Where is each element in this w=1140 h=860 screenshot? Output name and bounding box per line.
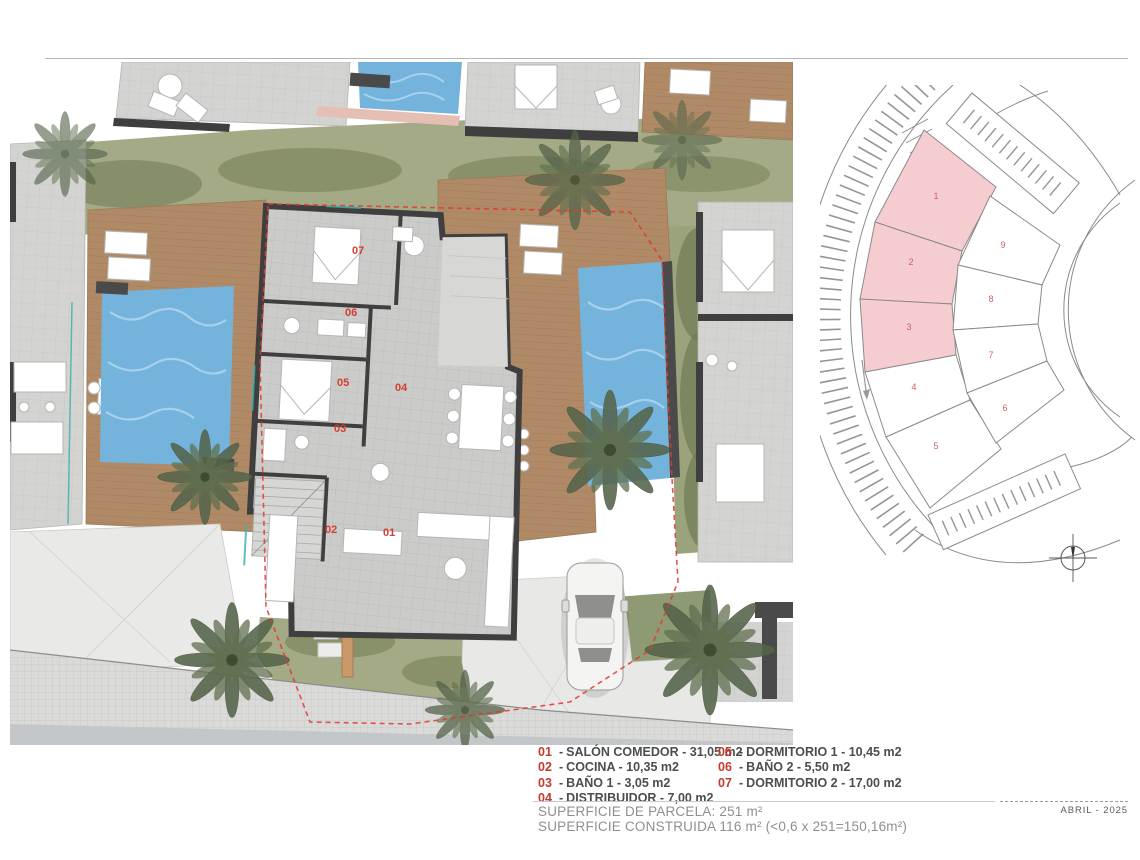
north-compass-icon	[1049, 534, 1097, 582]
plot-number-1: 1	[933, 191, 938, 201]
legend-item-text: BAÑO 2 - 5,50 m2	[746, 760, 850, 774]
neighbor-top-villa	[465, 62, 640, 142]
legend-item-text: DORMITORIO 2 - 17,00 m2	[746, 776, 901, 790]
neighbor-left-terrace	[10, 140, 86, 530]
plot-number-4: 4	[911, 382, 916, 392]
plot-number-3: 3	[906, 322, 911, 332]
legend-item-num: 03	[538, 776, 558, 791]
legend-column-left: 01-SALÓN COMEDOR - 31,05 m2 02-COCINA - …	[538, 745, 743, 807]
parcel-surface-line: SUPERFICIE DE PARCELA: 251 m²	[538, 805, 907, 820]
plot-number-2: 2	[908, 257, 913, 267]
room-label-02: 02	[325, 524, 337, 536]
legend-item: 01-SALÓN COMEDOR - 31,05 m2	[538, 745, 743, 760]
plan-sheet: { "page": { "date": "ABRIL - 2025" }, "l…	[0, 0, 1140, 860]
legend-column-right: 05-DORMITORIO 1 - 10,45 m2 06-BAÑO 2 - 5…	[718, 745, 902, 791]
legend-item: 07-DORMITORIO 2 - 17,00 m2	[718, 776, 902, 791]
room-label-06: 06	[345, 307, 357, 319]
legend-item: 02-COCINA - 10,35 m2	[538, 760, 743, 775]
legend-item-num: 01	[538, 745, 558, 760]
legend-item-num: 05	[718, 745, 738, 760]
legend-item: 05-DORMITORIO 1 - 10,45 m2	[718, 745, 902, 760]
plot-number-6: 6	[1002, 403, 1007, 413]
legend-item: 03-BAÑO 1 - 3,05 m2	[538, 776, 743, 791]
roundabout-arc	[1064, 203, 1120, 417]
legend-item-num: 02	[538, 760, 558, 775]
plot-number-7: 7	[988, 350, 993, 360]
car	[561, 558, 629, 698]
site-plan-drawing: 1 2 3 4 5 6 7 8 9	[820, 85, 1140, 590]
legend-item-text: BAÑO 1 - 3,05 m2	[566, 776, 670, 790]
plot-number-5: 5	[933, 441, 938, 451]
legend-item-text: DORMITORIO 1 - 10,45 m2	[746, 745, 901, 759]
room-label-01: 01	[383, 527, 395, 539]
neighbor-top-terrace	[113, 62, 350, 132]
sheet-date: ABRIL - 2025	[950, 805, 1128, 816]
room-label-03: 03	[334, 423, 346, 435]
top-rule	[45, 58, 1128, 59]
neighbor-right-villa	[696, 202, 793, 562]
built-surface-line: SUPERFICIE CONSTRUIDA 116 m² (<0,6 x 251…	[538, 820, 907, 835]
room-label-04: 04	[395, 382, 408, 394]
legend-item-text: SALÓN COMEDOR - 31,05 m2	[566, 745, 742, 759]
villa	[241, 203, 536, 646]
plot-number-9: 9	[1000, 240, 1005, 250]
room-label-07: 07	[352, 245, 364, 257]
floor-plan-rendering: 01 02 03 04 05 06 07	[10, 62, 793, 745]
legend-item-num: 06	[718, 760, 738, 775]
legend-item-num: 07	[718, 776, 738, 791]
legend-item-text: COCINA - 10,35 m2	[566, 760, 679, 774]
neighbor-left-pool	[96, 281, 235, 471]
surface-summary: SUPERFICIE DE PARCELA: 251 m² SUPERFICIE…	[538, 805, 907, 834]
date-separator-rule	[1000, 801, 1128, 802]
legend-item: 06-BAÑO 2 - 5,50 m2	[718, 760, 902, 775]
legend-separator-rule	[533, 801, 995, 802]
room-label-05: 05	[337, 377, 349, 389]
plot-number-8: 8	[988, 294, 993, 304]
